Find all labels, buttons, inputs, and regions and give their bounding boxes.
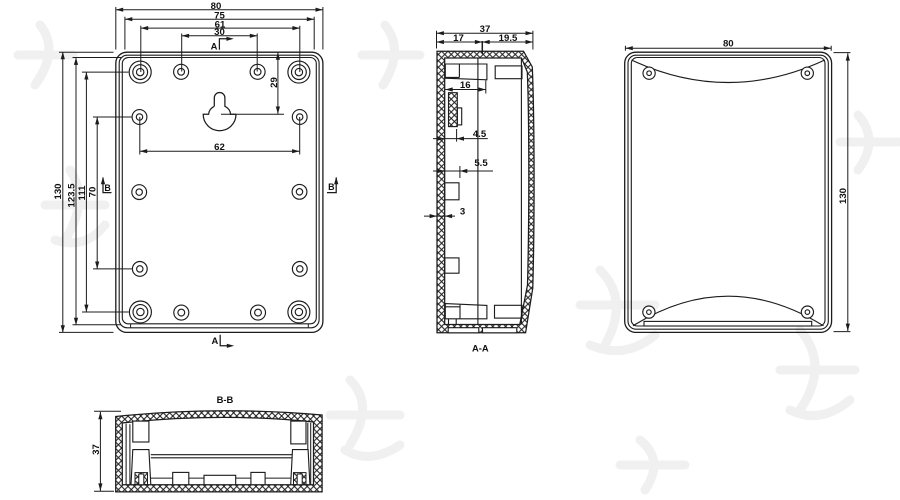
svg-text:70: 70 xyxy=(88,187,99,198)
svg-text:130: 130 xyxy=(838,188,849,204)
svg-text:80: 80 xyxy=(723,38,734,49)
svg-text:37: 37 xyxy=(480,24,491,35)
svg-text:A-A: A-A xyxy=(472,342,489,353)
svg-text:B: B xyxy=(104,183,110,193)
svg-text:30: 30 xyxy=(214,27,225,38)
svg-text:4.5: 4.5 xyxy=(473,129,487,140)
svg-text:5.5: 5.5 xyxy=(474,158,488,169)
svg-text:17: 17 xyxy=(453,33,464,44)
svg-text:A: A xyxy=(211,40,218,51)
svg-text:19.5: 19.5 xyxy=(499,33,518,44)
svg-text:A: A xyxy=(212,335,219,346)
svg-text:62: 62 xyxy=(214,142,225,153)
svg-text:130: 130 xyxy=(53,183,64,199)
svg-text:29: 29 xyxy=(269,77,280,88)
svg-text:16: 16 xyxy=(460,80,471,91)
svg-text:B-B: B-B xyxy=(217,394,234,405)
svg-text:B: B xyxy=(328,182,334,192)
svg-text:123.5: 123.5 xyxy=(66,183,77,208)
svg-text:111: 111 xyxy=(77,185,88,201)
svg-text:3: 3 xyxy=(460,207,465,218)
svg-text:37: 37 xyxy=(91,444,102,455)
